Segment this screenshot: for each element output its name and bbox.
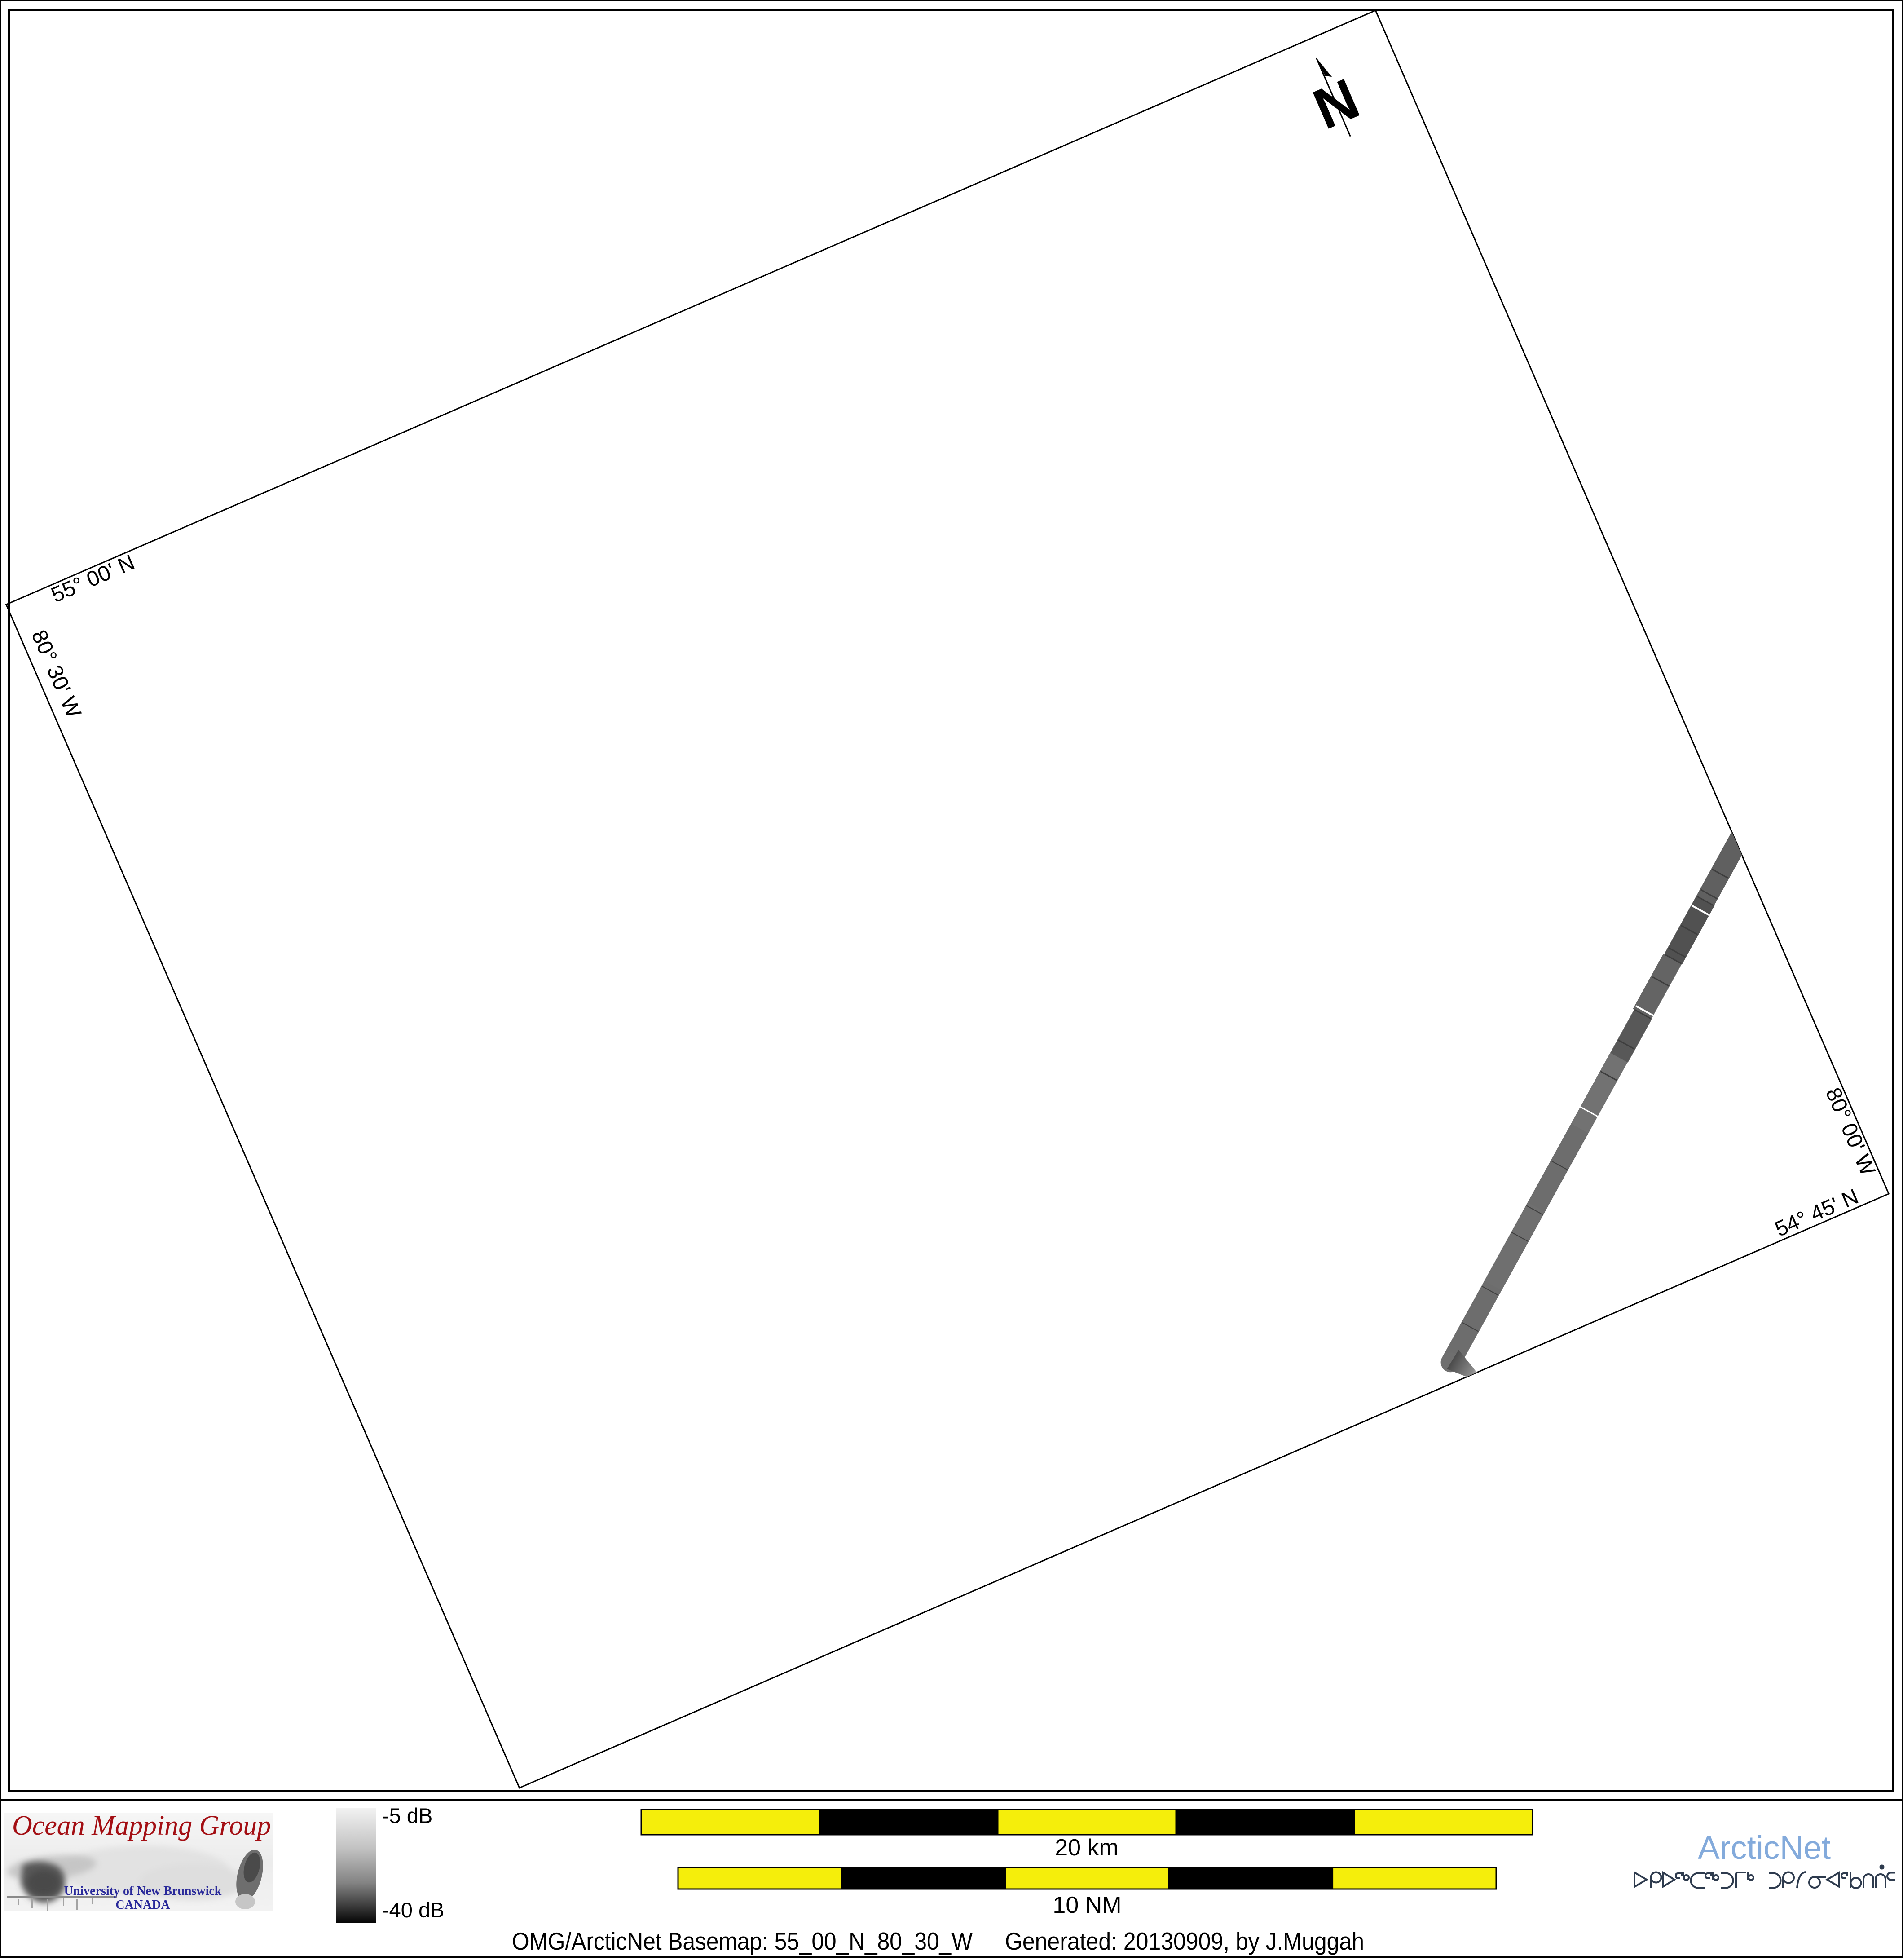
- svg-text:OMG/ArcticNet Basemap: 55_00_N: OMG/ArcticNet Basemap: 55_00_N_80_30_W: [512, 1927, 973, 1955]
- svg-text:10 NM: 10 NM: [1053, 1892, 1121, 1918]
- svg-text:CANADA: CANADA: [115, 1898, 170, 1912]
- svg-text:University of New Brunswick: University of New Brunswick: [64, 1884, 222, 1898]
- svg-text:ArcticNet: ArcticNet: [1698, 1830, 1831, 1866]
- svg-text:Ocean Mapping Group: Ocean Mapping Group: [12, 1810, 271, 1841]
- svg-text:-40 dB: -40 dB: [382, 1898, 444, 1922]
- svg-text:-5 dB: -5 dB: [382, 1804, 432, 1828]
- svg-text:Generated: 20130909, by J.Mugg: Generated: 20130909, by J.Muggah: [1005, 1927, 1364, 1955]
- svg-text:20 km: 20 km: [1055, 1835, 1119, 1861]
